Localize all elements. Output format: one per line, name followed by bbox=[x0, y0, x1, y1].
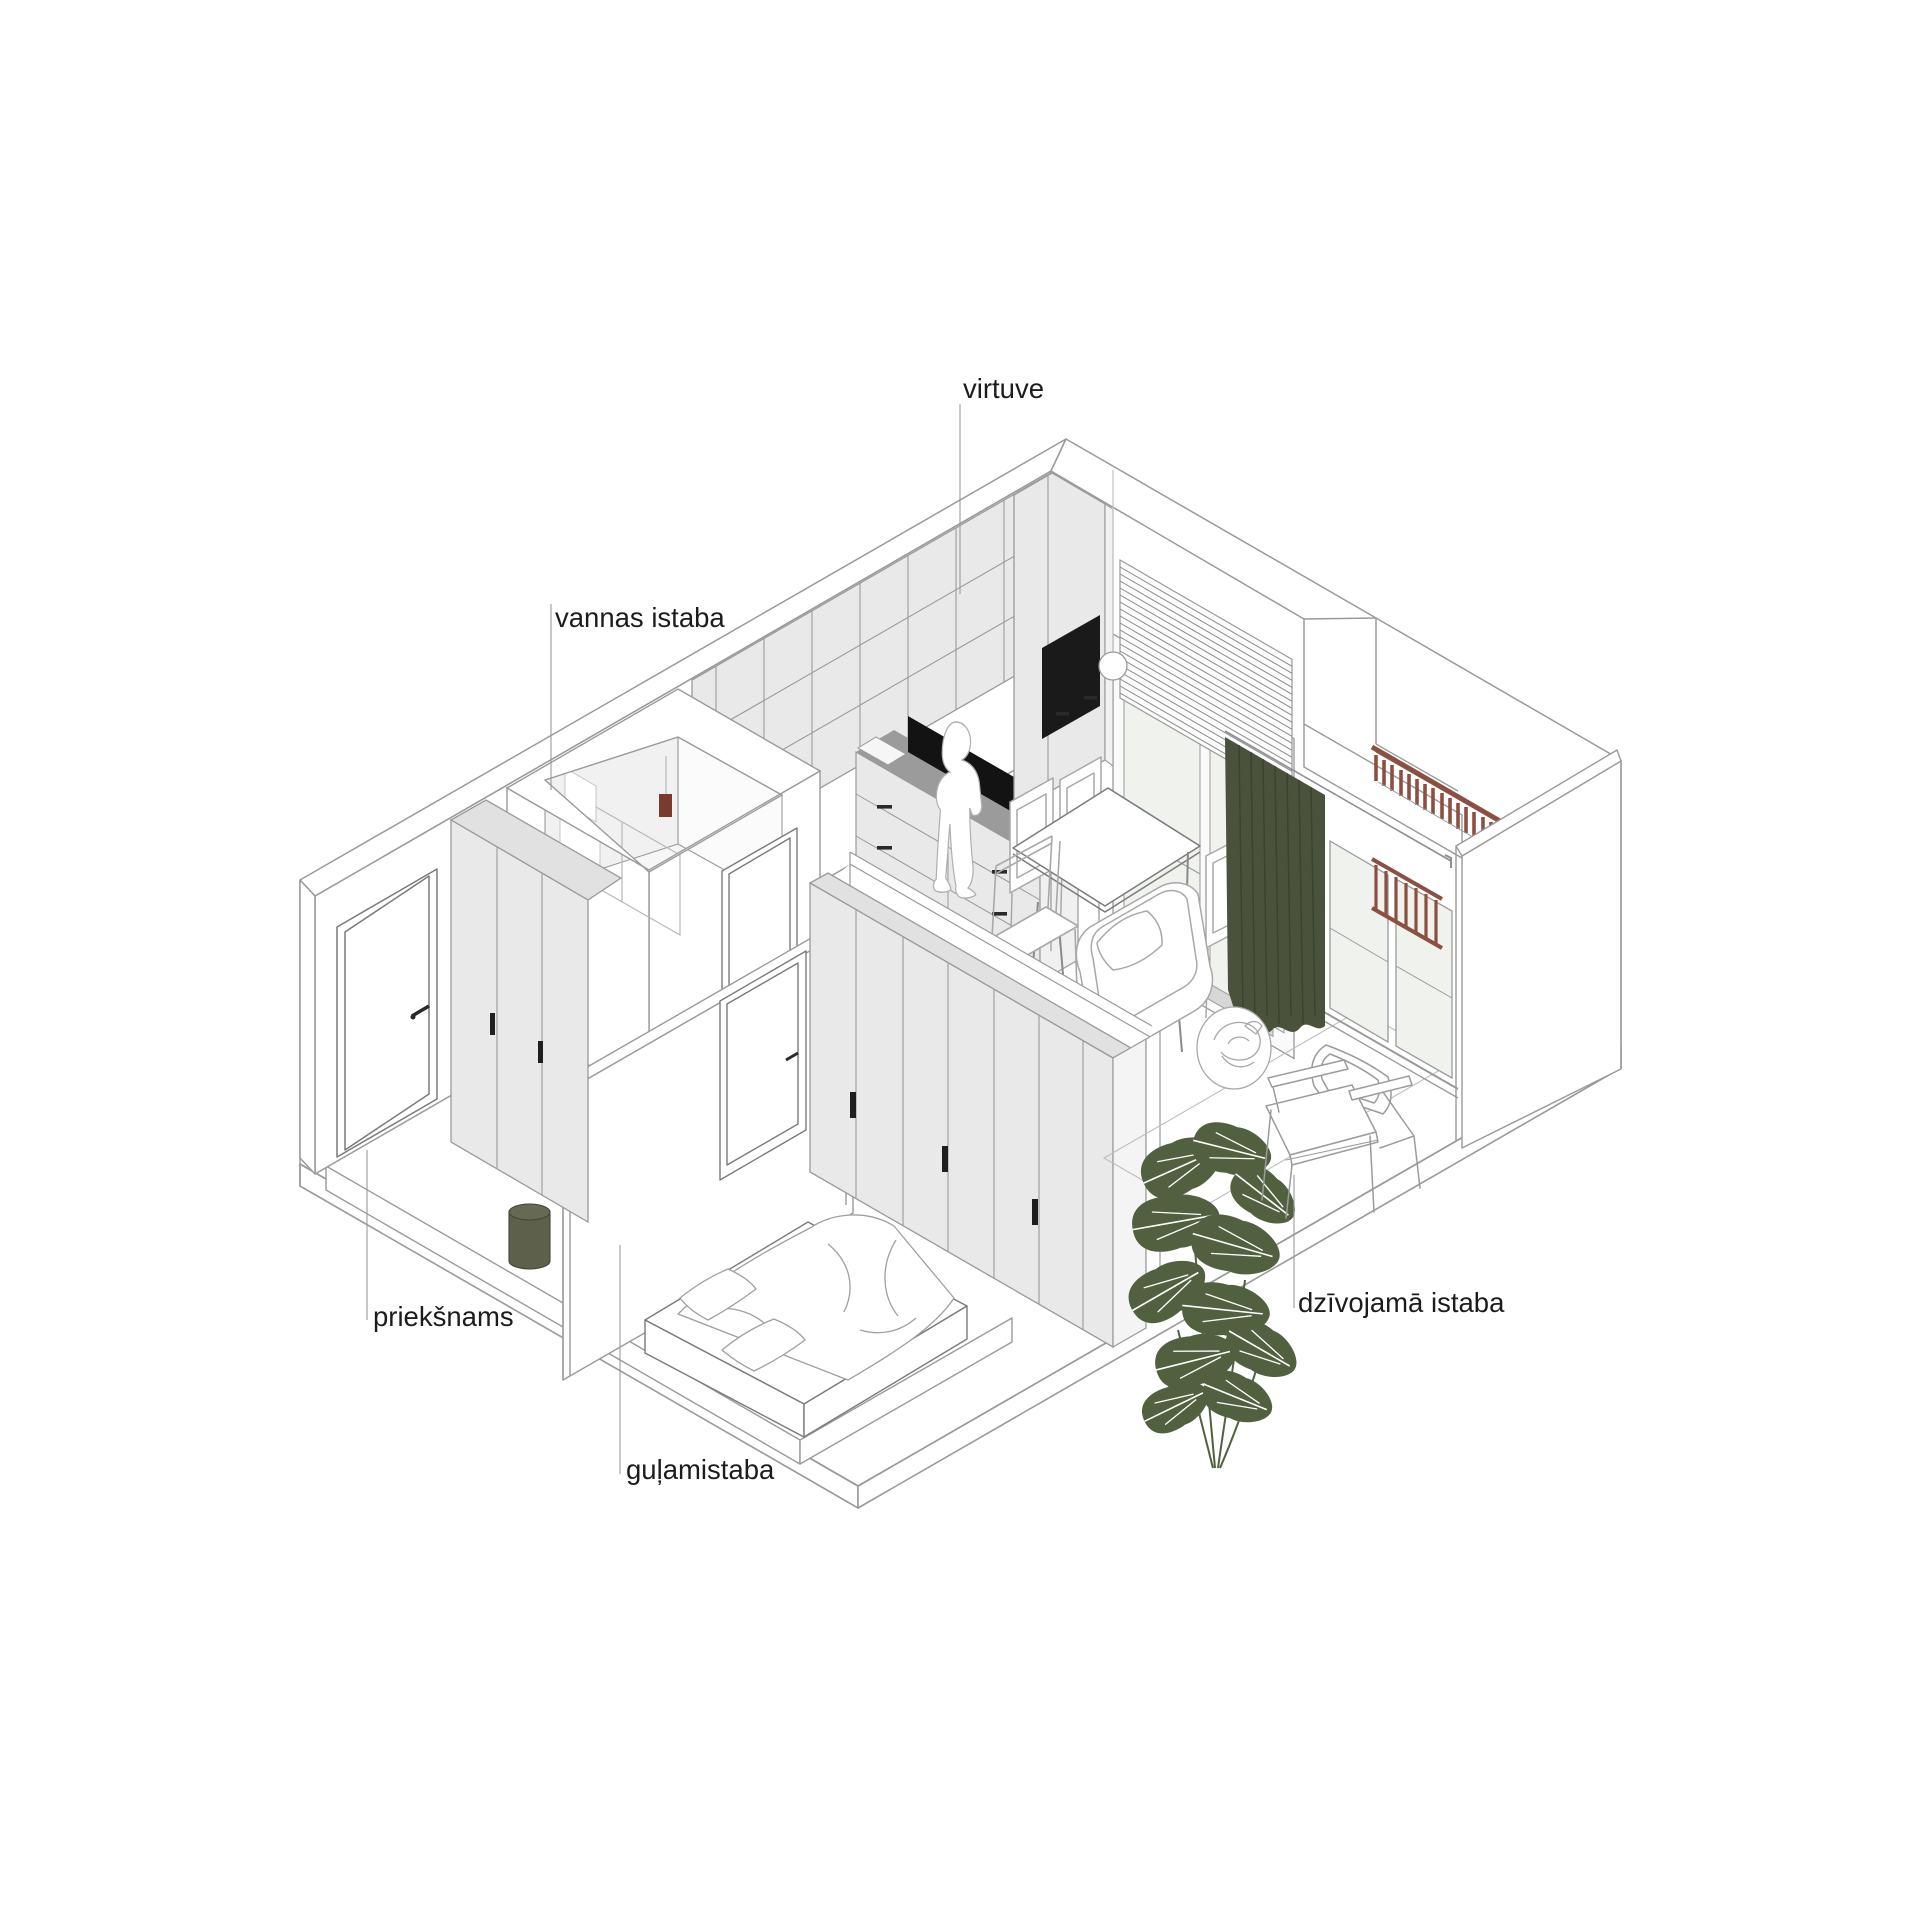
svg-text:guļamistaba: guļamistaba bbox=[626, 1454, 775, 1485]
svg-text:vannas istaba: vannas istaba bbox=[555, 602, 725, 633]
svg-text:dzīvojamā istaba: dzīvojamā istaba bbox=[1298, 1287, 1505, 1318]
svg-text:priekšnams: priekšnams bbox=[373, 1301, 514, 1332]
svg-text:virtuve: virtuve bbox=[963, 373, 1044, 404]
